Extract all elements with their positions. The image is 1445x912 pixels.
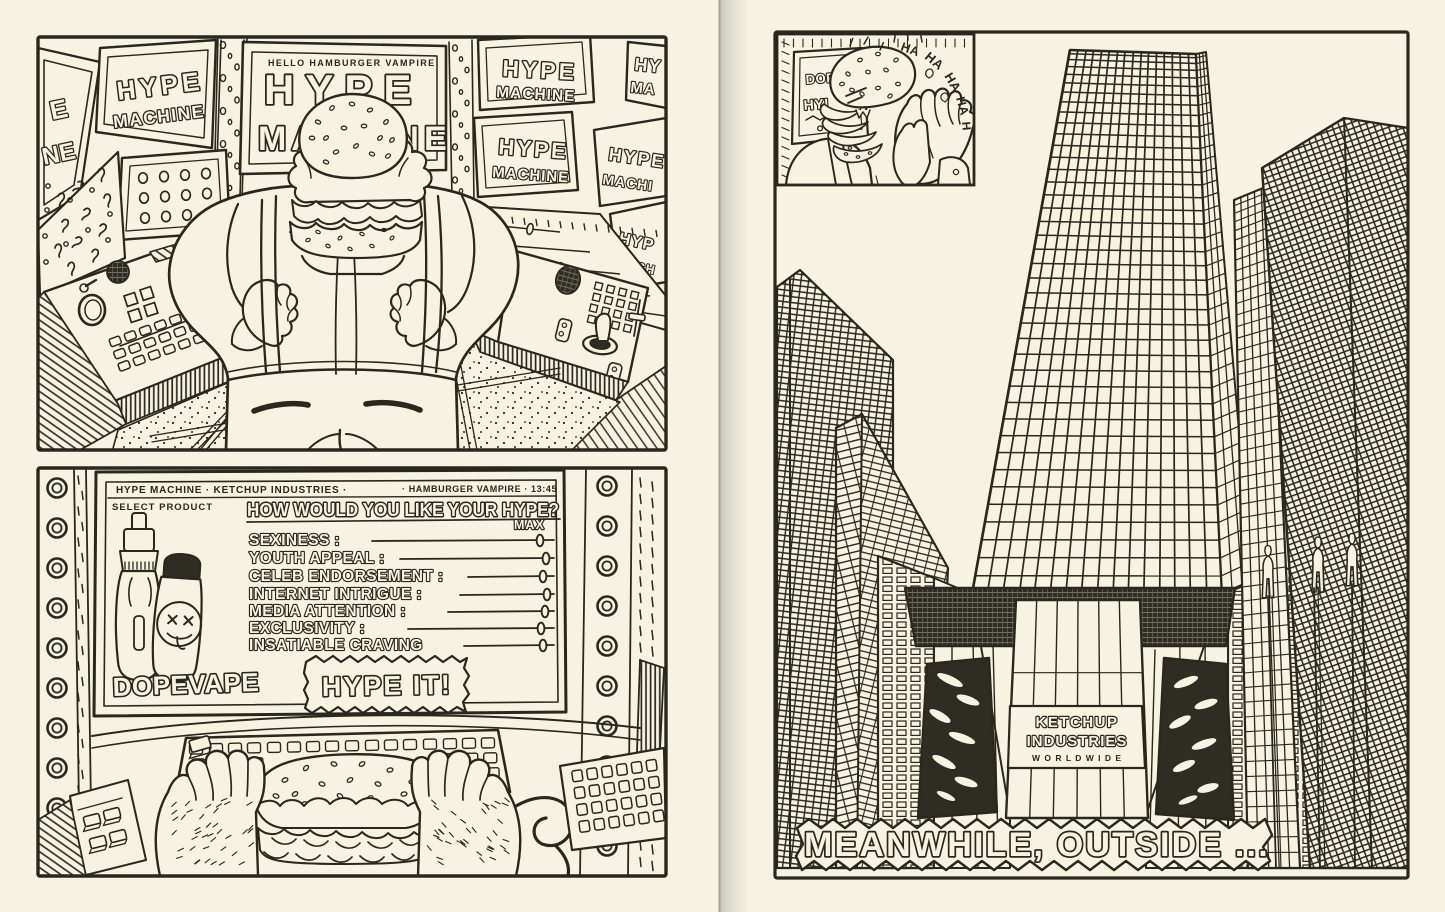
svg-text:MEANWHILE, OUTSIDE ...: MEANWHILE, OUTSIDE ... (804, 826, 1270, 864)
svg-text:INDUSTRIES: INDUSTRIES (1027, 733, 1128, 750)
svg-text:MEDIA ATTENTION :: MEDIA ATTENTION : (249, 603, 406, 620)
svg-text:INSATIABLE CRAVING: INSATIABLE CRAVING (249, 637, 423, 654)
svg-text:· HAMBURGER VAMPIRE · 13:45: · HAMBURGER VAMPIRE · 13:45 (402, 484, 557, 494)
svg-text:YOUTH APPEAL :: YOUTH APPEAL : (249, 550, 385, 567)
svg-text:HYPE IT!: HYPE IT! (322, 670, 453, 702)
svg-text:INTERNET INTRIGUE :: INTERNET INTRIGUE : (249, 586, 422, 603)
svg-text:W O R L D W I D E: W O R L D W I D E (1032, 753, 1122, 763)
svg-text:MA: MA (630, 79, 657, 99)
svg-text:KETCHUP: KETCHUP (1035, 714, 1118, 731)
svg-text:H: H (959, 121, 974, 131)
svg-text:MAX: MAX (514, 518, 545, 532)
svg-text:EXCLUSIVITY :: EXCLUSIVITY : (249, 620, 365, 637)
svg-text:SEXINESS :: SEXINESS : (249, 532, 340, 549)
svg-text:HYPE: HYPE (498, 134, 569, 164)
svg-text:HYPE MACHINE · KETCHUP IND: HYPE MACHINE · KETCHUP INDUSTRIES · (116, 485, 347, 496)
svg-text:HOW WOULD YOU LIKE YOUR H: HOW WOULD YOU LIKE YOUR HYPE? (247, 499, 559, 520)
svg-text:CELEB ENDORSEMENT :: CELEB ENDORSEMENT : (249, 568, 443, 585)
svg-text:HYPE: HYPE (502, 55, 578, 85)
svg-text:DOPEVAPE: DOPEVAPE (112, 667, 260, 702)
svg-text:SELECT PRODUCT: SELECT PRODUCT (112, 502, 213, 513)
svg-text:HY: HY (634, 54, 663, 77)
